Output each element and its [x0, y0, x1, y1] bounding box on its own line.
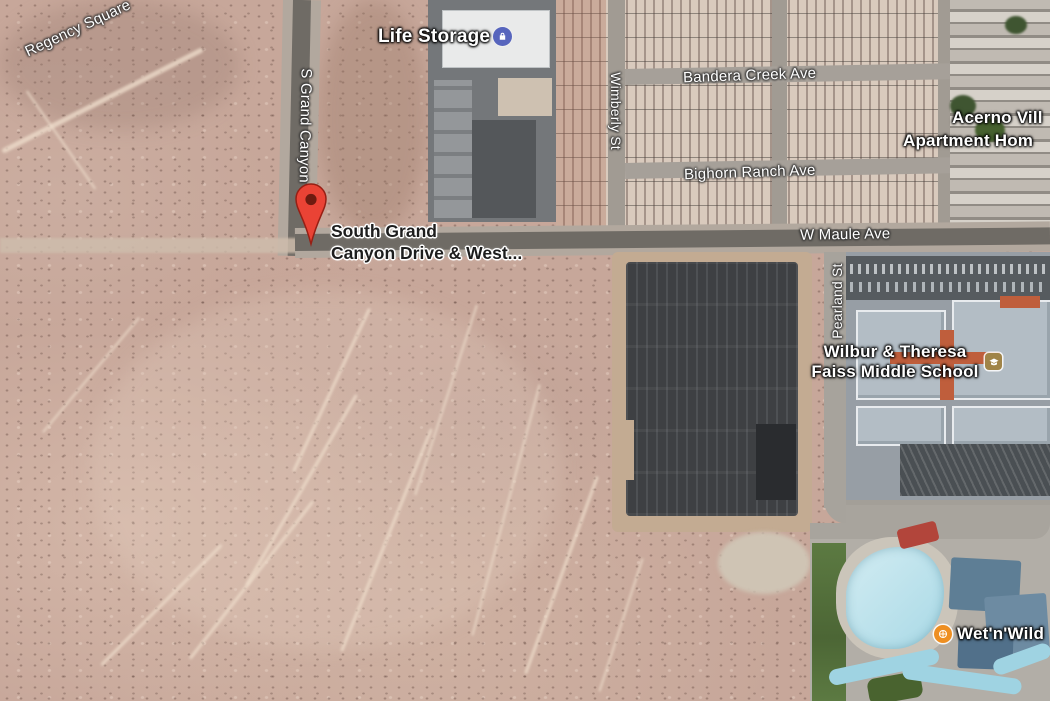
- water-park: [810, 523, 1050, 701]
- housing-red-roof-column: [556, 0, 606, 230]
- pin-glyph: [290, 181, 332, 249]
- school-icon[interactable]: [985, 353, 1002, 370]
- mortarboard-glyph: [988, 356, 1000, 368]
- poi-label-school[interactable]: Wilbur & Theresa Faiss Middle School: [795, 342, 995, 381]
- life-storage-rear-building: [472, 120, 536, 218]
- marker-title[interactable]: South Grand Canyon Drive & West...: [331, 220, 522, 264]
- terrain-patch: [90, 290, 560, 650]
- field-dark-plot: [756, 424, 796, 500]
- school-building: [952, 406, 1050, 446]
- school-corridor: [1000, 296, 1040, 308]
- school-label-line2: Faiss Middle School: [795, 362, 995, 382]
- dirt-field-border: [612, 252, 812, 532]
- attraction-icon[interactable]: [934, 625, 952, 643]
- marker-title-line1: South Grand: [331, 220, 522, 242]
- ferris-wheel-glyph: [937, 628, 949, 640]
- shade-canopy-parking: [900, 444, 1050, 496]
- lock-glyph: [496, 30, 509, 43]
- field-notch: [620, 420, 634, 480]
- parked-cars-row: [850, 282, 1046, 292]
- terrain-patch: [0, 0, 240, 130]
- parked-cars-row: [850, 264, 1046, 274]
- poi-label-acerno-line2[interactable]: Apartment Hom: [903, 131, 1033, 151]
- road-label-w-maule: W Maule Ave: [800, 225, 891, 244]
- road-label-s-grand-canyon: S Grand Canyon: [295, 50, 315, 200]
- storage-lock-icon[interactable]: [493, 27, 512, 46]
- poi-label-life-storage[interactable]: Life Storage: [378, 26, 490, 48]
- poi-label-acerno-line1[interactable]: Acerno Vill: [952, 108, 1043, 128]
- life-storage-units: [434, 80, 472, 218]
- tree-cluster: [1005, 16, 1027, 34]
- street-vertical: [772, 0, 787, 230]
- school-building: [856, 406, 946, 446]
- life-storage-courtyard: [498, 78, 552, 116]
- dirt-track: [0, 238, 302, 253]
- wash-line: [598, 558, 643, 692]
- concrete-pad: [718, 532, 810, 594]
- school-label-line1: Wilbur & Theresa: [795, 342, 995, 362]
- map-pin[interactable]: [290, 181, 332, 249]
- map-canvas[interactable]: Regency Square S Grand Canyon Wimberly S…: [0, 0, 1050, 701]
- road-school-south: [846, 505, 1050, 523]
- marker-title-line2: Canyon Drive & West...: [331, 242, 522, 264]
- road-label-pearland-st: Pearland St: [829, 246, 845, 356]
- poi-label-wet-n-wild[interactable]: Wet'n'Wild: [957, 624, 1044, 644]
- road-label-wimberly-st: Wimberly St: [608, 46, 624, 176]
- school-parking-lot: [846, 256, 1050, 300]
